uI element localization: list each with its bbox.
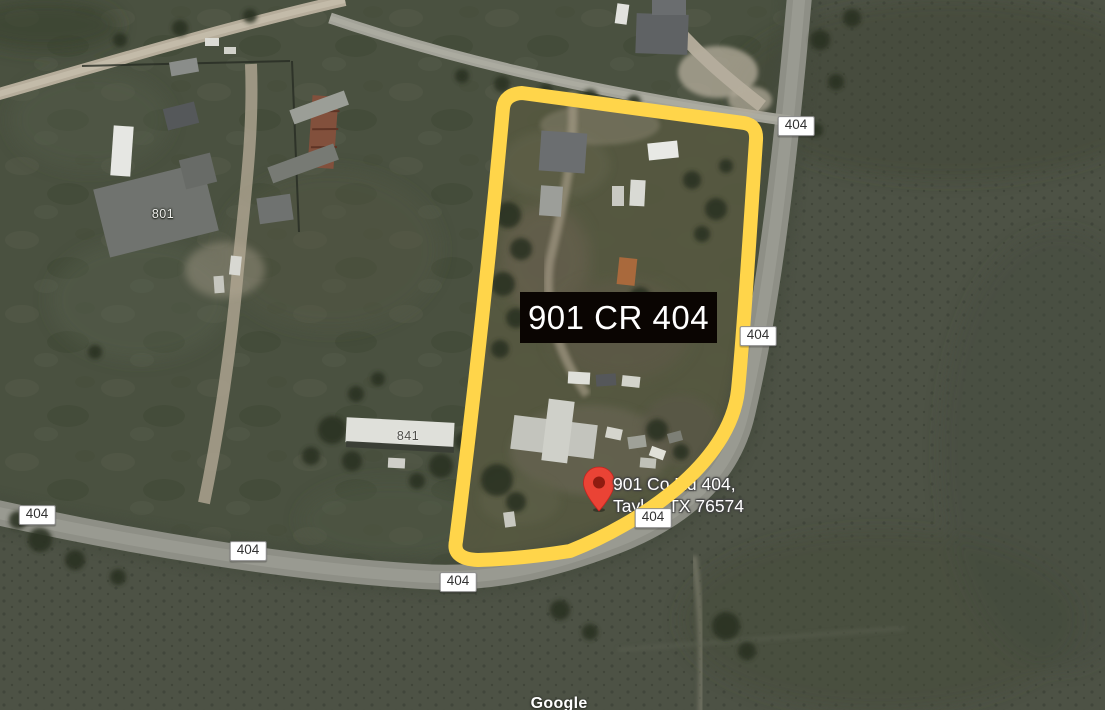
satellite-imagery — [0, 0, 1105, 710]
pin-address-line2: Taylor, TX 76574 — [613, 495, 744, 517]
house-number-801: 801 — [152, 207, 174, 221]
pin-address-line1: 901 Co Rd 404, — [613, 473, 744, 495]
house-number-841: 841 — [397, 429, 419, 443]
road-label-404: 404 — [740, 326, 777, 346]
location-pin[interactable] — [582, 466, 616, 512]
property-address-text: 901 CR 404 — [528, 299, 709, 337]
map-pin-icon — [582, 466, 616, 512]
road-label-404: 404 — [778, 116, 815, 136]
property-address-banner: 901 CR 404 — [520, 292, 717, 343]
road-label-404: 404 — [19, 505, 56, 525]
pin-address-label: 901 Co Rd 404, Taylor, TX 76574 — [613, 473, 744, 517]
road-label-404: 404 — [635, 508, 672, 528]
road-label-404: 404 — [440, 572, 477, 592]
road-label-404: 404 — [230, 541, 267, 561]
satellite-map-viewport[interactable]: 801 841 901 Co Rd 404, Taylor, TX 76574 … — [0, 0, 1105, 710]
google-watermark[interactable]: Google — [531, 695, 588, 710]
